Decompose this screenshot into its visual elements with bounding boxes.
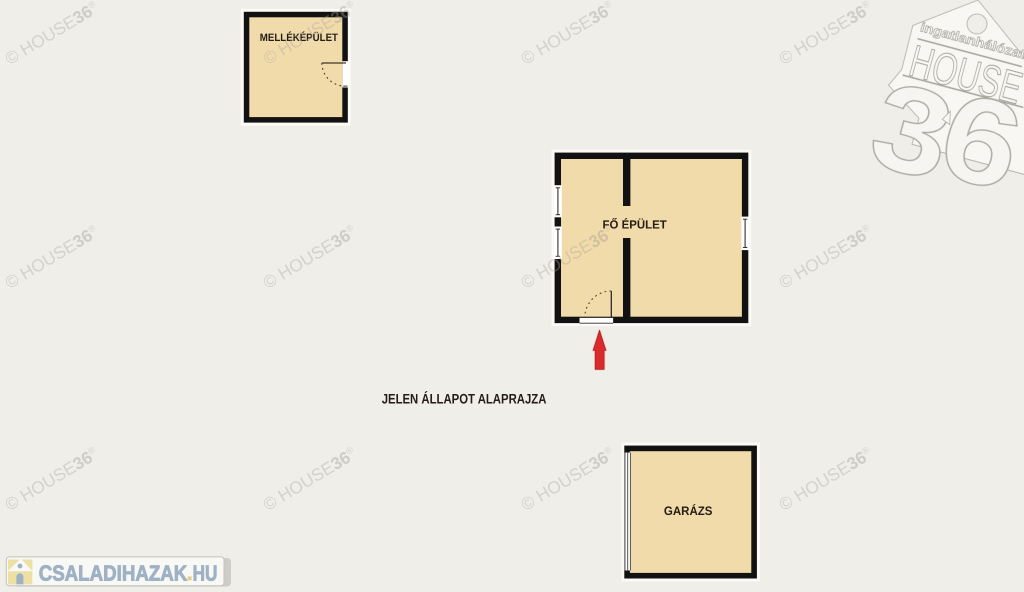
svg-text:CSALADIHAZAK: CSALADIHAZAK [39, 560, 188, 585]
svg-text:GARÁZS: GARÁZS [664, 504, 713, 518]
svg-text:FŐ ÉPÜLET: FŐ ÉPÜLET [603, 217, 668, 231]
svg-text:JELEN ÁLLAPOT ALAPRAJZA: JELEN ÁLLAPOT ALAPRAJZA [382, 391, 547, 407]
svg-text:HU: HU [193, 560, 218, 585]
